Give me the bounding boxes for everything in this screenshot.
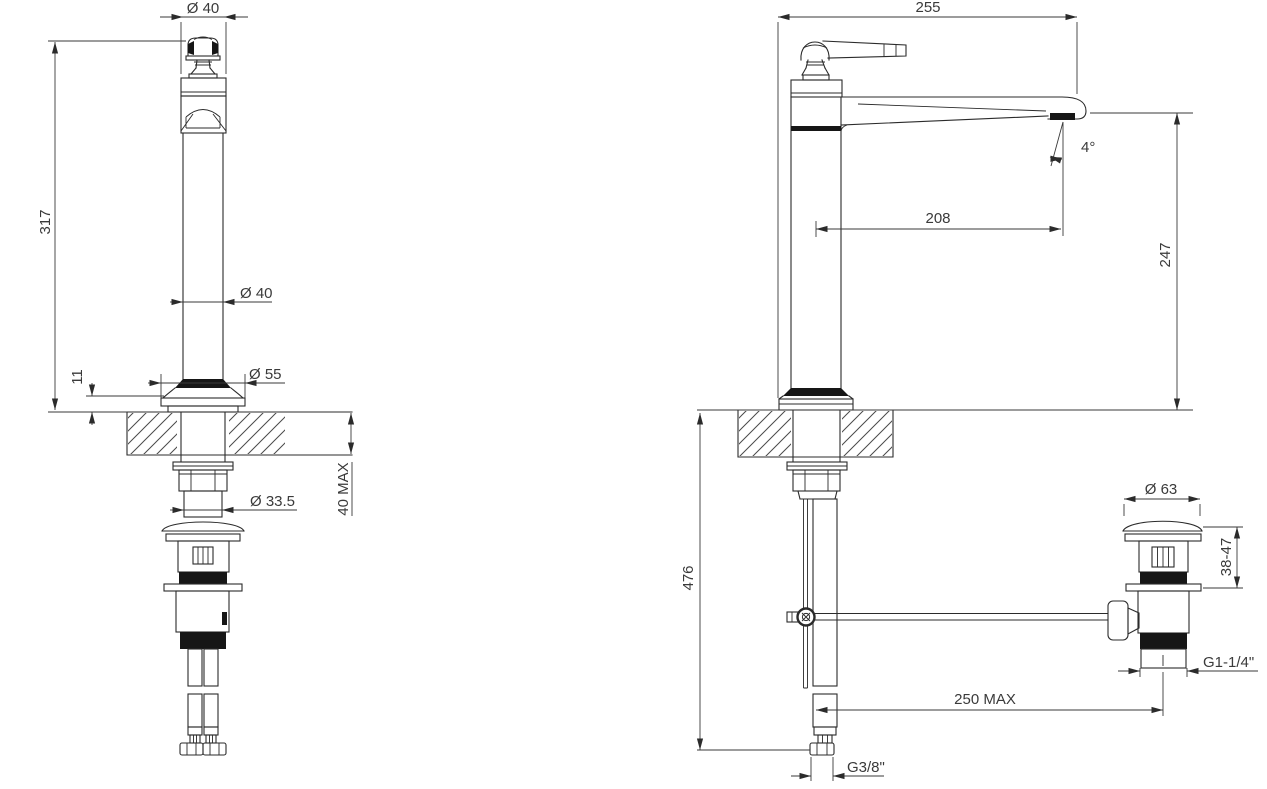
- front-handle-knob: [186, 37, 220, 78]
- popup-rod-clamp: [798, 609, 815, 626]
- dim-overall-height-label: 317: [37, 209, 54, 234]
- dim-base-diameter-label: Ø 55: [249, 366, 282, 383]
- dim-front-top-diameter-label: Ø 40: [187, 0, 220, 17]
- dim-spout-height-label: 247: [1157, 242, 1174, 267]
- dim-hose-drop-label: 476: [680, 565, 697, 590]
- dim-body-diameter-label: Ø 40: [240, 285, 273, 302]
- dim-supply-thread-label: G3/8": [847, 759, 885, 776]
- front-popup-waste: [162, 522, 244, 649]
- side-lever-handle: [801, 41, 906, 80]
- side-fixing-hardware: [787, 410, 847, 499]
- technical-drawing-canvas: Ø 40 317 Ø 40 Ø 55 11 Ø 33.5 40 MAX: [0, 0, 1267, 789]
- front-dimensions: Ø 40 317 Ø 40 Ø 55 11 Ø 33.5 40 MAX: [37, 0, 352, 516]
- side-supply-hose: [810, 499, 837, 755]
- drawing-page: Ø 40 317 Ø 40 Ø 55 11 Ø 33.5 40 MAX: [0, 0, 1267, 789]
- dim-shank-diameter-label: Ø 33.5: [250, 493, 295, 510]
- side-dimensions: 255 4° 208 247 476 Ø 63 38-47 G1-1/4" 25…: [680, 0, 1258, 781]
- side-popup-rod: [787, 499, 1108, 688]
- dim-overall-depth-label: 255: [915, 0, 940, 16]
- front-countertop: [127, 412, 352, 455]
- dim-spout-angle-label: 4°: [1081, 139, 1095, 156]
- side-faucet-body: [779, 80, 1086, 410]
- dim-drain-thread-label: G1-1/4": [1203, 654, 1254, 671]
- dim-counter-thickness-label: 40 MAX: [335, 462, 352, 515]
- dim-drain-cap-diameter-label: Ø 63: [1145, 481, 1178, 498]
- front-view: Ø 40 317 Ø 40 Ø 55 11 Ø 33.5 40 MAX: [37, 0, 352, 755]
- side-countertop: [738, 410, 893, 457]
- side-view: 255 4° 208 247 476 Ø 63 38-47 G1-1/4" 25…: [680, 0, 1258, 781]
- dim-rod-reach-label: 250 MAX: [954, 691, 1016, 708]
- front-faucet-body: [161, 78, 245, 412]
- dim-spout-reach-label: 208: [925, 210, 950, 227]
- dim-base-flange-height-label: 11: [69, 369, 86, 385]
- dim-drain-height-range-label: 38-47: [1218, 538, 1235, 576]
- side-popup-waste: [1108, 521, 1202, 668]
- front-fixing-hardware: [173, 412, 233, 517]
- front-supply-hoses: [180, 649, 226, 755]
